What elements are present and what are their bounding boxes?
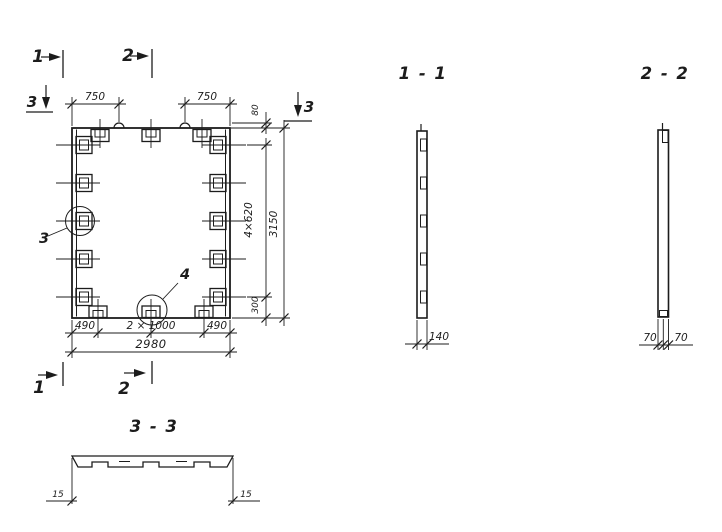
dim-70-left: 70 xyxy=(643,332,657,344)
drawing-sheet: 3 4 750 750 xyxy=(0,0,722,532)
dim-side-end: 300 xyxy=(251,296,261,313)
section-mark-1-bottom: 1 xyxy=(33,362,63,398)
dim-side-pitch: 4×620 xyxy=(243,202,255,238)
section-1-1-member xyxy=(417,131,427,318)
section-label-2: 2 xyxy=(118,379,130,399)
section-1-1: 1 - 1 140 xyxy=(399,64,450,350)
anchor-notch-top-1 xyxy=(91,119,109,148)
section-mark-1-top: 1 xyxy=(32,47,63,78)
notch-cut xyxy=(421,253,427,265)
anchor-notch-top-3 xyxy=(193,119,211,148)
dim-bottom-right: 490 xyxy=(207,320,227,332)
dim-15-left: 15 xyxy=(52,490,64,500)
dim-height-total: 3150 xyxy=(268,210,280,237)
dim-70-right: 70 xyxy=(674,332,688,344)
section-label-1: 1 xyxy=(33,378,45,398)
dimension-right-chain: 80 4×620 300 3150 xyxy=(231,104,290,326)
anchor-notch-right-4 xyxy=(202,251,246,268)
bottom-step-cut xyxy=(660,311,668,317)
dimension-bottom-chain: 490 2 × 1000 490 2980 xyxy=(65,320,237,358)
callout-leader xyxy=(48,228,67,236)
section-label-3: 3 xyxy=(27,93,37,111)
plan-view: 3 4 750 750 xyxy=(26,46,314,399)
section-2-2: 2 - 2 70 70 xyxy=(639,64,693,350)
dim-top-left: 750 xyxy=(85,91,105,103)
top-notch-cut xyxy=(663,131,669,143)
dim-bottom-left: 490 xyxy=(75,320,95,332)
notch-cut xyxy=(421,139,427,151)
dim-bottom-middle: 2 × 1000 xyxy=(127,320,176,332)
anchor-notch-left-2 xyxy=(56,175,100,192)
anchor-notch-top-2 xyxy=(142,119,160,148)
anchor-notch-left-1 xyxy=(56,137,100,154)
section-mark-3-left: 3 xyxy=(26,85,53,112)
dimension-140: 140 xyxy=(405,320,449,350)
section-1-1-title: 1 - 1 xyxy=(399,64,448,83)
anchor-notch-right-1 xyxy=(202,137,246,154)
anchor-notch-right-3 xyxy=(202,213,246,230)
anchor-notch-left-4 xyxy=(56,251,100,268)
anchor-notch-right-5 xyxy=(202,289,246,306)
anchor-notch-right-2 xyxy=(202,175,246,192)
dimension-15-left: 15 xyxy=(46,458,77,506)
section-3-3-slab xyxy=(72,456,233,467)
section-3-3-title: 3 - 3 xyxy=(130,417,179,436)
detail-callout-4: 4 xyxy=(137,267,190,325)
section-mark-2-top: 2 xyxy=(122,46,152,78)
notch-cut xyxy=(421,215,427,227)
dimension-15-right: 15 xyxy=(228,458,260,506)
section-2-2-title: 2 - 2 xyxy=(641,64,690,83)
section-3-3: 3 - 3 15 15 xyxy=(46,417,260,506)
section-mark-3-right: 3 xyxy=(284,92,314,121)
callout-label-4: 4 xyxy=(179,267,190,283)
callout-label-3: 3 xyxy=(39,231,49,247)
panel-outline xyxy=(72,128,230,318)
dim-15-right: 15 xyxy=(240,490,252,500)
dimension-70-70: 70 70 xyxy=(639,319,693,350)
notch-cut xyxy=(421,291,427,303)
anchor-notch-left-5 xyxy=(56,289,100,306)
section-label-3: 3 xyxy=(304,98,314,116)
dim-top-right: 750 xyxy=(197,91,217,103)
dim-thickness: 140 xyxy=(429,331,449,343)
dim-width-total: 2980 xyxy=(135,337,166,351)
dim-top-lip: 80 xyxy=(251,104,261,116)
callout-leader xyxy=(163,283,178,299)
panel-drawing: 3 4 750 750 xyxy=(0,0,722,532)
section-2-2-member xyxy=(658,130,669,317)
section-mark-2-bottom: 2 xyxy=(118,361,152,399)
notch-cut xyxy=(421,177,427,189)
